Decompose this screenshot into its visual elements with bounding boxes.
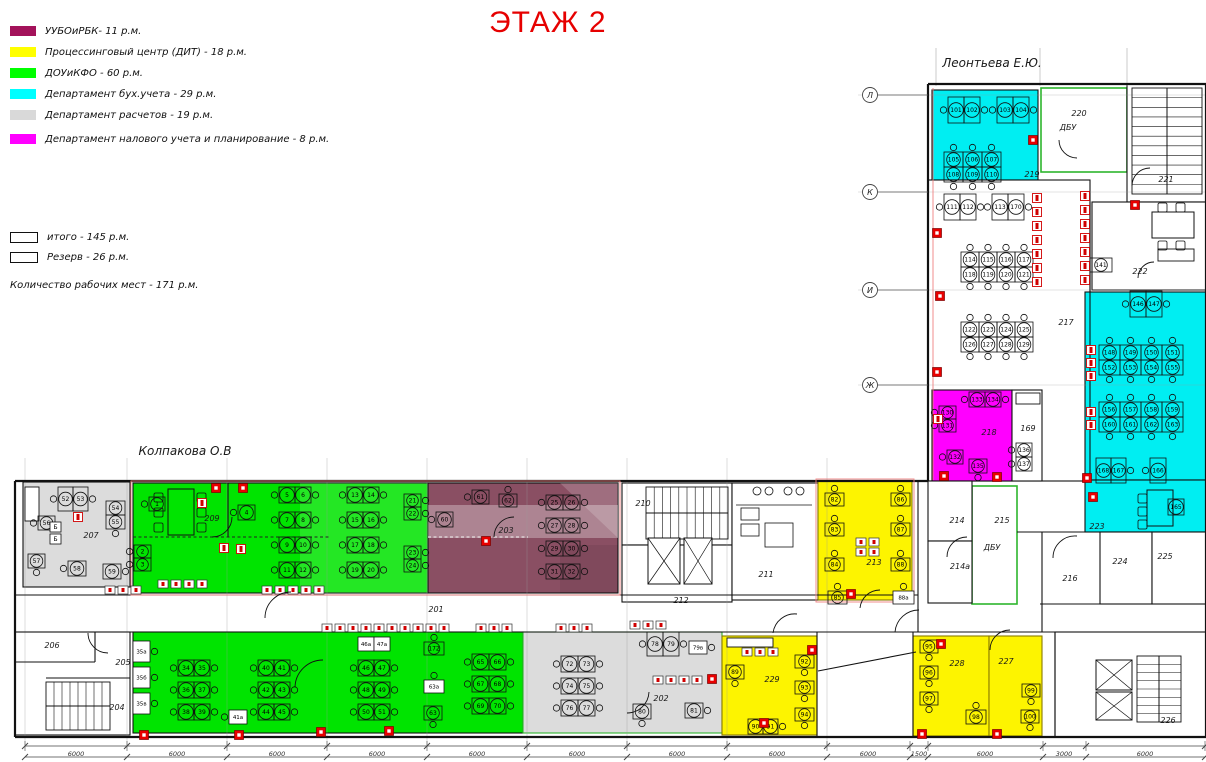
svg-text:118: 118 xyxy=(964,272,976,279)
svg-text:105: 105 xyxy=(948,157,960,164)
svg-text:23: 23 xyxy=(409,550,417,557)
plan-text: Колпакова О.В xyxy=(138,444,231,458)
svg-text:41: 41 xyxy=(278,665,286,672)
svg-text:54: 54 xyxy=(112,505,120,512)
svg-text:75: 75 xyxy=(583,683,591,690)
svg-text:29: 29 xyxy=(551,546,559,553)
svg-text:134: 134 xyxy=(987,397,999,404)
legend-total-label: Резерв - 26 р.м. xyxy=(47,252,129,263)
svg-text:39: 39 xyxy=(198,709,206,716)
svg-text:35в: 35в xyxy=(136,701,146,707)
plan-text: 6000 xyxy=(68,750,85,758)
svg-text:31: 31 xyxy=(551,569,559,576)
svg-text:98: 98 xyxy=(972,714,980,721)
plan-text: 217 xyxy=(1058,318,1074,327)
svg-text:119: 119 xyxy=(982,272,994,279)
plan-text: 214а xyxy=(950,562,970,571)
legend-item: Департамент расчетов - 19 р.м. xyxy=(10,109,213,121)
svg-text:90: 90 xyxy=(752,724,760,731)
legend-item: УУБОиРБК- 11 р.м. xyxy=(10,25,141,37)
svg-text:12: 12 xyxy=(299,567,307,574)
room-206 xyxy=(15,632,130,735)
legend-swatch xyxy=(10,110,36,120)
plan-text: К xyxy=(867,188,873,197)
svg-text:3: 3 xyxy=(141,562,145,569)
svg-text:84: 84 xyxy=(831,562,839,569)
svg-text:92: 92 xyxy=(801,659,809,666)
svg-text:127: 127 xyxy=(982,342,994,349)
plan-text: 6000 xyxy=(1137,750,1154,758)
room-220 xyxy=(1041,88,1127,172)
svg-text:151: 151 xyxy=(1167,350,1179,357)
plan-text: 225 xyxy=(1157,552,1172,561)
svg-text:48: 48 xyxy=(362,687,370,694)
svg-text:26: 26 xyxy=(568,500,576,507)
svg-text:83: 83 xyxy=(831,527,839,534)
page-title: ЭТАЖ 2 xyxy=(489,6,607,40)
svg-text:88: 88 xyxy=(897,562,905,569)
svg-text:156: 156 xyxy=(1104,407,1116,414)
svg-text:28: 28 xyxy=(568,523,576,530)
plan-text: 205 xyxy=(115,658,130,667)
plan-text: 218 xyxy=(981,428,996,437)
svg-text:42: 42 xyxy=(262,687,270,694)
svg-text:18: 18 xyxy=(367,542,375,549)
svg-text:141: 141 xyxy=(1095,262,1107,269)
cabinet xyxy=(1158,249,1194,261)
plan-text: 6000 xyxy=(169,750,186,758)
svg-text:53: 53 xyxy=(77,496,85,503)
svg-text:19: 19 xyxy=(351,567,359,574)
plan-text: 6000 xyxy=(977,750,994,758)
svg-text:147: 147 xyxy=(1148,301,1160,308)
plan-text: 202 xyxy=(653,694,668,703)
svg-text:158: 158 xyxy=(1146,407,1158,414)
svg-text:146: 146 xyxy=(1132,301,1144,308)
svg-text:77: 77 xyxy=(583,705,591,712)
room-210 xyxy=(622,483,732,545)
svg-text:136: 136 xyxy=(1018,447,1030,454)
svg-text:37: 37 xyxy=(198,687,206,694)
legend-swatch xyxy=(10,47,36,57)
svg-text:47: 47 xyxy=(378,665,386,672)
svg-text:24: 24 xyxy=(409,563,417,570)
svg-text:36: 36 xyxy=(182,687,190,694)
svg-text:94: 94 xyxy=(801,712,809,719)
svg-text:160: 160 xyxy=(1104,422,1116,429)
plan-text: 221 xyxy=(1158,175,1173,184)
svg-text:100: 100 xyxy=(1024,714,1036,721)
svg-text:55: 55 xyxy=(112,519,120,526)
plan-text: Леонтьева Е.Ю. xyxy=(941,56,1041,70)
svg-text:16: 16 xyxy=(367,517,375,524)
svg-text:27: 27 xyxy=(551,523,559,530)
workstation-88а: 88а xyxy=(893,591,914,604)
workstation-cluster: 46а47а xyxy=(358,637,390,651)
plan-text: 203 xyxy=(498,526,513,535)
svg-text:115: 115 xyxy=(982,257,994,264)
svg-text:35: 35 xyxy=(198,665,206,672)
svg-text:6: 6 xyxy=(301,492,305,499)
cabinet xyxy=(25,487,39,521)
svg-text:82: 82 xyxy=(831,497,839,504)
svg-text:15: 15 xyxy=(351,517,359,524)
svg-text:47а: 47а xyxy=(377,642,387,648)
svg-text:154: 154 xyxy=(1146,365,1158,372)
svg-text:76: 76 xyxy=(566,705,574,712)
svg-text:4: 4 xyxy=(245,510,249,517)
svg-text:52: 52 xyxy=(62,496,70,503)
plan-text: 6000 xyxy=(469,750,486,758)
svg-text:97: 97 xyxy=(925,696,933,703)
svg-text:79: 79 xyxy=(667,641,675,648)
plan-text: 211 xyxy=(758,570,773,579)
legend-item: ДОУиКФО - 60 р.м. xyxy=(10,67,143,79)
svg-text:74: 74 xyxy=(566,683,574,690)
svg-text:51: 51 xyxy=(378,709,386,716)
legend-total-label: итого - 145 р.м. xyxy=(47,232,129,243)
svg-text:133: 133 xyxy=(971,397,983,404)
svg-text:58: 58 xyxy=(73,566,81,573)
plan-text: Б xyxy=(53,536,57,543)
plan-text: 220 xyxy=(1071,109,1086,118)
svg-text:61: 61 xyxy=(477,494,485,501)
svg-text:32: 32 xyxy=(568,569,576,576)
svg-text:162: 162 xyxy=(1146,422,1158,429)
svg-text:87: 87 xyxy=(897,527,905,534)
svg-text:117: 117 xyxy=(1018,257,1030,264)
svg-text:163: 163 xyxy=(1167,422,1179,429)
workstation-35а: 35а xyxy=(133,641,150,662)
plan-text: 201 xyxy=(428,605,443,614)
workstation-79в: 79в xyxy=(689,641,707,654)
svg-text:63а: 63а xyxy=(429,684,439,690)
svg-text:41а: 41а xyxy=(233,715,243,721)
plan-text: 169 xyxy=(1020,424,1035,433)
svg-text:125: 125 xyxy=(1018,327,1030,334)
floorplan-page: ЭТАЖ 2 Количество рабочих мест - 171 р.м… xyxy=(0,0,1206,762)
svg-text:126: 126 xyxy=(964,342,976,349)
plan-text: 214 xyxy=(949,516,964,525)
svg-text:79в: 79в xyxy=(693,645,703,651)
svg-text:9: 9 xyxy=(285,542,289,549)
svg-text:130: 130 xyxy=(942,410,954,417)
svg-text:62: 62 xyxy=(504,498,512,505)
plan-text: 207 xyxy=(83,531,99,540)
plan-text: И xyxy=(867,286,873,295)
svg-text:131: 131 xyxy=(942,423,954,430)
svg-text:35б: 35б xyxy=(136,675,147,681)
svg-text:73: 73 xyxy=(583,661,591,668)
svg-text:46: 46 xyxy=(362,665,370,672)
plan-text: 216 xyxy=(1062,574,1077,583)
svg-text:124: 124 xyxy=(1000,327,1012,334)
svg-text:116: 116 xyxy=(1000,257,1012,264)
svg-text:137: 137 xyxy=(1018,461,1030,468)
plan-text: ДБУ xyxy=(983,543,1002,552)
svg-text:112: 112 xyxy=(962,204,974,211)
svg-text:45: 45 xyxy=(278,709,286,716)
plan-text: 226 xyxy=(1160,716,1175,725)
legend-label: Департамент бух.учета - 29 р.м. xyxy=(45,89,216,100)
svg-text:35а: 35а xyxy=(136,649,146,655)
svg-text:148: 148 xyxy=(1104,350,1116,357)
plan-text: 6000 xyxy=(769,750,786,758)
svg-text:13: 13 xyxy=(351,492,359,499)
room-224 xyxy=(1100,532,1152,604)
svg-text:101: 101 xyxy=(950,107,962,114)
svg-text:8: 8 xyxy=(301,517,305,524)
plan-text: 219 xyxy=(1024,170,1039,179)
legend-label: Департамент налового учета и планировани… xyxy=(45,134,329,145)
svg-text:57: 57 xyxy=(33,558,41,565)
legend-swatch xyxy=(10,68,36,78)
svg-text:7: 7 xyxy=(285,517,289,524)
legend-box-swatch xyxy=(10,232,38,243)
cabinet xyxy=(1016,393,1040,404)
svg-text:86: 86 xyxy=(897,497,905,504)
door-arc xyxy=(1053,536,1077,558)
door-arc xyxy=(895,610,919,632)
plan-text: 227 xyxy=(998,657,1014,666)
svg-text:81: 81 xyxy=(690,708,698,715)
legend-note: Количество рабочих мест - 171 р.м. xyxy=(10,280,198,291)
plan-text: 1500 xyxy=(911,750,928,758)
plan-text: 213 xyxy=(866,558,881,567)
room-222 xyxy=(1092,202,1206,290)
svg-text:129: 129 xyxy=(1018,342,1030,349)
svg-text:120: 120 xyxy=(1000,272,1012,279)
svg-text:40: 40 xyxy=(262,665,270,672)
svg-text:70: 70 xyxy=(494,703,502,710)
svg-text:103: 103 xyxy=(999,107,1011,114)
svg-text:2: 2 xyxy=(141,549,145,556)
plan-text: 6000 xyxy=(269,750,286,758)
svg-text:106: 106 xyxy=(967,157,979,164)
svg-text:104: 104 xyxy=(1015,107,1027,114)
svg-text:166: 166 xyxy=(1152,468,1164,475)
legend-label: ДОУиКФО - 60 р.м. xyxy=(45,68,143,79)
svg-text:60: 60 xyxy=(441,517,449,524)
svg-text:113: 113 xyxy=(994,204,1006,211)
svg-text:43: 43 xyxy=(278,687,286,694)
legend-box-swatch xyxy=(10,252,38,263)
svg-text:49: 49 xyxy=(378,687,386,694)
svg-text:56: 56 xyxy=(43,520,51,527)
grid-axes: ЛКИЖ xyxy=(863,88,929,393)
plan-text: 209 xyxy=(204,514,219,523)
svg-text:65: 65 xyxy=(477,659,485,666)
svg-text:167: 167 xyxy=(1113,468,1125,475)
plan-text: 6000 xyxy=(369,750,386,758)
legend-total-item: итого - 145 р.м. xyxy=(10,231,129,243)
svg-text:30: 30 xyxy=(568,546,576,553)
plan-text: 222 xyxy=(1132,267,1147,276)
room-225 xyxy=(1152,532,1206,604)
plan-text: 224 xyxy=(1112,557,1127,566)
svg-text:20: 20 xyxy=(367,567,375,574)
svg-text:107: 107 xyxy=(986,157,998,164)
svg-text:59: 59 xyxy=(108,569,116,576)
svg-text:44: 44 xyxy=(262,709,270,716)
svg-text:155: 155 xyxy=(1167,365,1179,372)
svg-text:132: 132 xyxy=(949,454,961,461)
svg-text:99: 99 xyxy=(1027,688,1035,695)
svg-text:111: 111 xyxy=(946,204,958,211)
legend-label: Процессинговый центр (ДИТ) - 18 р.м. xyxy=(45,47,247,58)
svg-text:69: 69 xyxy=(477,703,485,710)
room-214a xyxy=(928,541,972,603)
legend-swatch xyxy=(10,89,36,99)
svg-text:150: 150 xyxy=(1146,350,1158,357)
door-arc xyxy=(265,592,291,618)
cabinet xyxy=(727,638,773,647)
plan-text: 6000 xyxy=(569,750,586,758)
svg-text:85: 85 xyxy=(834,595,842,602)
svg-text:93: 93 xyxy=(801,685,809,692)
workstation-35б: 35б xyxy=(133,667,150,688)
svg-text:159: 159 xyxy=(1167,407,1179,414)
door-arc xyxy=(773,614,797,633)
svg-text:67: 67 xyxy=(477,681,485,688)
svg-text:50: 50 xyxy=(362,709,370,716)
legend-total-item: Резерв - 26 р.м. xyxy=(10,251,129,263)
plan-text: 228 xyxy=(949,659,964,668)
svg-text:1: 1 xyxy=(155,501,159,508)
plan-text: 206 xyxy=(44,641,59,650)
plan-text: 204 xyxy=(109,703,124,712)
svg-text:88а: 88а xyxy=(898,595,908,601)
svg-text:152: 152 xyxy=(1104,365,1116,372)
svg-text:63: 63 xyxy=(429,710,437,717)
room-214 xyxy=(928,481,972,541)
room-223a xyxy=(1085,292,1206,480)
svg-text:109: 109 xyxy=(967,172,979,179)
svg-text:161: 161 xyxy=(1125,422,1137,429)
legend-item: Департамент бух.учета - 29 р.м. xyxy=(10,88,216,100)
workstation-63а: 63а xyxy=(424,680,444,693)
workstation-46а: 46а xyxy=(358,637,374,651)
plan-text: 3000 xyxy=(1056,750,1073,758)
svg-text:25: 25 xyxy=(551,500,559,507)
legend-label: Департамент расчетов - 19 р.м. xyxy=(45,110,213,121)
legend-item: Процессинговый центр (ДИТ) - 18 р.м. xyxy=(10,46,247,58)
legend-swatch xyxy=(10,134,36,144)
svg-text:165: 165 xyxy=(1170,504,1182,511)
svg-text:110: 110 xyxy=(986,172,998,179)
legend-label: УУБОиРБК- 11 р.м. xyxy=(45,26,141,37)
svg-text:22: 22 xyxy=(409,511,417,518)
plan-text: 210 xyxy=(635,499,650,508)
workstation-41а: 41а xyxy=(229,710,247,724)
svg-text:153: 153 xyxy=(1125,365,1137,372)
svg-text:121: 121 xyxy=(1018,272,1030,279)
svg-text:114: 114 xyxy=(964,257,976,264)
svg-text:157: 157 xyxy=(1125,407,1137,414)
svg-text:46а: 46а xyxy=(361,642,371,648)
svg-text:72: 72 xyxy=(566,661,574,668)
svg-text:95: 95 xyxy=(925,644,933,651)
plan-text: 212 xyxy=(673,596,688,605)
svg-text:34: 34 xyxy=(182,665,190,672)
svg-text:14: 14 xyxy=(367,492,375,499)
svg-text:108: 108 xyxy=(948,172,960,179)
plan-text: 6000 xyxy=(860,750,877,758)
plan-text: 229 xyxy=(764,675,779,684)
workstation-cluster: 727374757677 xyxy=(553,656,602,716)
svg-text:168: 168 xyxy=(1098,468,1110,475)
svg-text:5: 5 xyxy=(285,492,289,499)
plan-text: Ж xyxy=(865,381,875,390)
svg-text:11: 11 xyxy=(283,567,291,574)
svg-text:10: 10 xyxy=(299,542,307,549)
plan-text: Б xyxy=(53,524,57,531)
svg-text:38: 38 xyxy=(182,709,190,716)
workstation-cluster: 656667686970 xyxy=(464,654,513,714)
legend-swatch xyxy=(10,26,36,36)
svg-text:68: 68 xyxy=(494,681,502,688)
plan-text: 223 xyxy=(1089,522,1104,531)
plan-text: ДБУ xyxy=(1059,123,1078,132)
svg-text:135: 135 xyxy=(972,463,984,470)
workstation-35в: 35в xyxy=(133,693,150,714)
svg-text:102: 102 xyxy=(966,107,978,114)
workstation-47а: 47а xyxy=(374,637,390,651)
svg-text:66: 66 xyxy=(494,659,502,666)
svg-text:123: 123 xyxy=(982,327,994,334)
legend: Количество рабочих мест - 171 р.м. УУБОи… xyxy=(10,0,430,300)
svg-text:17: 17 xyxy=(351,542,359,549)
svg-text:96: 96 xyxy=(925,670,933,677)
svg-text:172: 172 xyxy=(428,646,440,653)
svg-text:21: 21 xyxy=(409,498,417,505)
plan-text: 215 xyxy=(994,516,1009,525)
svg-text:149: 149 xyxy=(1125,350,1137,357)
svg-text:78: 78 xyxy=(651,641,659,648)
room-211 xyxy=(732,483,818,600)
plan-text: Л xyxy=(866,91,873,100)
dimensions: 6000600060006000600060006000600060001500… xyxy=(22,741,1206,760)
svg-text:128: 128 xyxy=(1000,342,1012,349)
svg-text:89: 89 xyxy=(731,669,739,676)
svg-text:122: 122 xyxy=(964,327,976,334)
legend-item: Департамент налового учета и планировани… xyxy=(10,133,329,145)
svg-text:170: 170 xyxy=(1010,204,1022,211)
plan-text: 6000 xyxy=(669,750,686,758)
